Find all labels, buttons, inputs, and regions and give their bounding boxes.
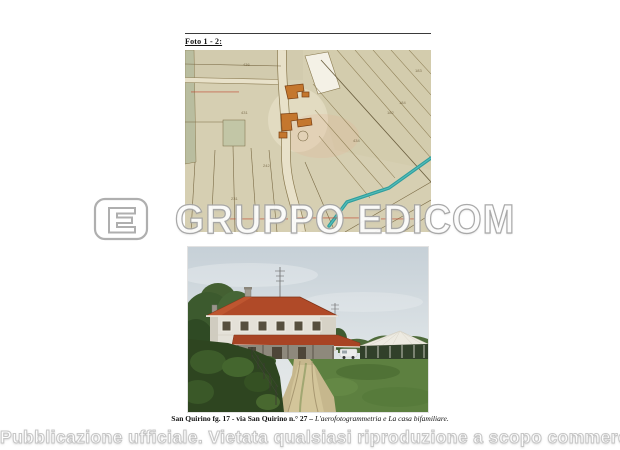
foto-label: Foto 1 - 2:: [185, 37, 222, 46]
photo-caption: San Quirino fg. 17 - via San Quirino n.°…: [0, 414, 620, 423]
parcel-number: 184: [399, 100, 406, 105]
caption-description: L'aerofotogrammetria e La casa bifamilia…: [315, 414, 449, 423]
parcel-number: 434: [353, 138, 360, 143]
parcel-number: 183: [415, 68, 422, 73]
cadastral-map: 436 431 434 184 183 182 242 231: [185, 50, 431, 232]
parcel-number: 436: [243, 62, 250, 67]
house-photo: [188, 247, 428, 412]
header-rule: [185, 33, 431, 34]
parcel-number: 431: [241, 110, 248, 115]
parcel-number: 242: [263, 163, 270, 168]
document-page: Foto 1 - 2:: [0, 0, 620, 450]
footer-watermark: Pubblicazione ufficiale. Vietata qualsia…: [0, 427, 620, 448]
edicom-e-logo-icon: [91, 196, 153, 242]
caption-address: San Quirino fg. 17 - via San Quirino n.°…: [171, 414, 315, 423]
house-photo-drawing: [188, 247, 428, 412]
map-green-strip: [185, 50, 196, 164]
parcel-number: 182: [387, 110, 394, 115]
parcel-number: 231: [231, 196, 238, 201]
cadastral-map-drawing: 436 431 434 184 183 182 242 231: [185, 50, 431, 232]
